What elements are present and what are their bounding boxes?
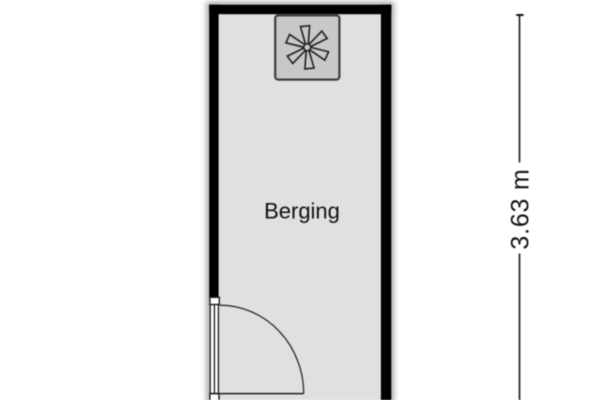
- svg-text:Berging: Berging: [264, 199, 340, 224]
- svg-text:3.63 m: 3.63 m: [507, 168, 535, 249]
